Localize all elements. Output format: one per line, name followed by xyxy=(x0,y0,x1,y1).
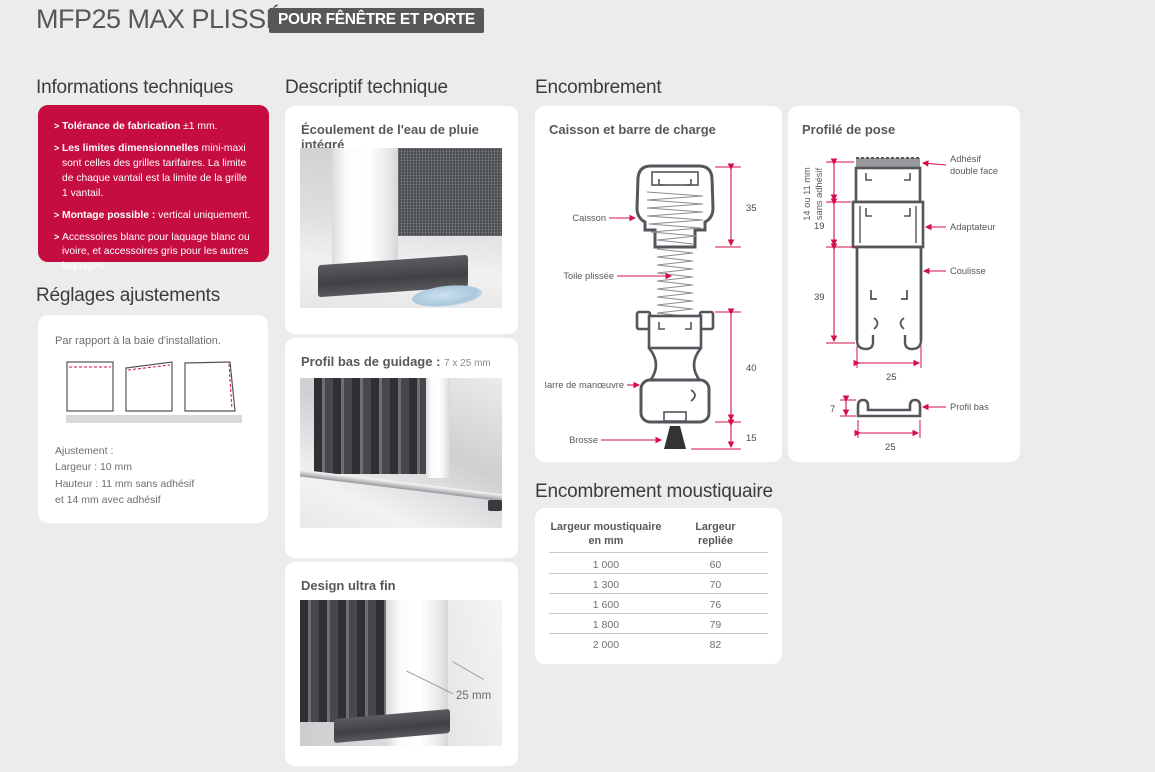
descriptif-card-ecoulement: Écoulement de l'eau de pluie intégré xyxy=(285,106,518,334)
info-item: >Les limites dimensionnelles mini-maxi s… xyxy=(54,142,255,202)
card-title: Caisson et barre de charge xyxy=(549,122,716,137)
info-item: >Montage possible : vertical uniquement. xyxy=(54,209,255,224)
photo-profil-bas xyxy=(300,378,502,528)
table-header-row: Largeur moustiquaire en mm Largeur repli… xyxy=(549,520,768,548)
divider xyxy=(549,593,768,594)
header-line: Largeur moustiquaire xyxy=(549,520,663,534)
caisson-card: Caisson et barre de charge xyxy=(535,106,782,462)
dim-7: 7 xyxy=(830,404,835,415)
dim-25-profil-bas: 25 xyxy=(885,442,896,453)
cell-repliee: 79 xyxy=(663,619,768,631)
cell-repliee: 76 xyxy=(663,599,768,611)
info-item-bold: Tolérance de fabrication xyxy=(62,121,180,132)
label-caisson: Caisson xyxy=(572,213,606,223)
section-heading-descriptif: Descriptif technique xyxy=(285,77,448,99)
descriptif-card-design: Design ultra fin 25 mm xyxy=(285,562,518,766)
info-item-text: vertical uniquement. xyxy=(155,210,250,221)
card-subtitle: 7 x 25 mm xyxy=(444,358,491,369)
table-row: 1 300 70 xyxy=(549,579,768,591)
dim-19: 19 xyxy=(814,221,825,232)
photo-design-ultra-fin: 25 mm xyxy=(300,600,502,746)
section-heading-encombrement-moustiquaire: Encombrement moustiquaire xyxy=(535,481,773,503)
cell-repliee: 60 xyxy=(663,559,768,571)
section-heading-encombrement: Encombrement xyxy=(535,77,661,99)
cell-repliee: 82 xyxy=(663,639,768,651)
mesh-screen xyxy=(398,148,502,236)
adjustment-notes: Ajustement : Largeur : 10 mm Hauteur : 1… xyxy=(55,443,194,508)
cell-largeur: 2 000 xyxy=(549,639,663,651)
dim-40: 40 xyxy=(746,363,757,374)
divider xyxy=(549,613,768,614)
cell-largeur: 1 300 xyxy=(549,579,663,591)
table-row: 2 000 82 xyxy=(549,639,768,651)
info-item-text: ±1 mm. xyxy=(180,121,217,132)
pleated-screen xyxy=(314,378,426,474)
chevron-bullet-icon: > xyxy=(54,231,59,244)
dim-35: 35 xyxy=(746,203,757,214)
adjustment-diagram xyxy=(66,355,242,427)
table-header-col1: Largeur moustiquaire en mm xyxy=(549,520,663,548)
card-title-text: Profil bas de guidage : xyxy=(301,354,440,369)
label-adaptateur: Adaptateur xyxy=(950,222,996,232)
section-heading-informations: Informations techniques xyxy=(36,77,233,99)
adjustment-line: et 14 mm avec adhésif xyxy=(55,492,194,508)
leader-line xyxy=(452,661,484,680)
reglages-card: Par rapport à la baie d'installation. Aj… xyxy=(38,315,268,523)
card-title: Profilé de pose xyxy=(802,122,895,137)
descriptif-card-profil-bas: Profil bas de guidage : 7 x 25 mm xyxy=(285,338,518,558)
section-heading-reglages: Réglages ajustements xyxy=(36,285,220,307)
reglages-caption: Par rapport à la baie d'installation. xyxy=(55,333,221,350)
table-row: 1 800 79 xyxy=(549,619,768,631)
moustiquaire-table-card: Largeur moustiquaire en mm Largeur repli… xyxy=(535,508,782,664)
photo-ecoulement-eau xyxy=(300,148,502,308)
table-row: 1 000 60 xyxy=(549,559,768,571)
white-profile xyxy=(426,378,450,478)
card-title: Design ultra fin xyxy=(301,578,396,593)
info-item-bold: Les limites dimensionnelles xyxy=(62,143,199,154)
divider xyxy=(549,573,768,574)
profile-pose-technical-drawing: 25 7 25 14 ou 11 mm sans adhésif 19 39 A… xyxy=(796,150,1012,456)
cell-largeur: 1 000 xyxy=(549,559,663,571)
info-item-text: Accessoires blanc pour laquage blanc ou … xyxy=(62,232,250,273)
page-title: MFP25 MAX PLISSÉ xyxy=(36,4,283,35)
pleated-screen xyxy=(300,600,386,722)
cell-largeur: 1 600 xyxy=(549,599,663,611)
info-item: >Accessoires blanc pour laquage blanc ou… xyxy=(54,231,255,276)
label-coulisse: Coulisse xyxy=(950,266,986,276)
info-red-box: >Tolérance de fabrication ±1 mm. >Les li… xyxy=(38,105,269,262)
chevron-bullet-icon: > xyxy=(54,120,59,133)
adjustment-line: Hauteur : 11 mm sans adhésif xyxy=(55,476,194,492)
chevron-bullet-icon: > xyxy=(54,209,59,222)
dim-14-11-line2: sans adhésif xyxy=(814,167,824,220)
divider xyxy=(549,552,768,553)
header-line: repliée xyxy=(663,534,768,548)
chevron-bullet-icon: > xyxy=(54,142,59,155)
label-adhesif: Adhésif xyxy=(950,154,981,164)
card-title: Profil bas de guidage : 7 x 25 mm xyxy=(301,354,491,369)
rail-end-cap xyxy=(488,500,502,511)
white-profile xyxy=(332,148,398,276)
label-barre-manoeuvre: Barre de manœuvre xyxy=(545,380,624,390)
table-row: 1 600 76 xyxy=(549,599,768,611)
table-header-col2: Largeur repliée xyxy=(663,520,768,548)
adjustment-line: Ajustement : xyxy=(55,443,194,459)
cell-repliee: 70 xyxy=(663,579,768,591)
dim-25-coulisse: 25 xyxy=(886,372,897,383)
info-item: >Tolérance de fabrication ±1 mm. xyxy=(54,120,255,135)
label-toile-plissee: Toile plissée xyxy=(563,271,614,281)
adjustment-line: Largeur : 10 mm xyxy=(55,459,194,475)
dim-39: 39 xyxy=(814,292,825,303)
profile-pose-card: Profilé de pose 25 7 xyxy=(788,106,1020,462)
divider xyxy=(549,633,768,634)
dimension-annotation: 25 mm xyxy=(456,690,491,702)
dim-14-11-line1: 14 ou 11 mm xyxy=(802,167,812,221)
header-line: en mm xyxy=(549,534,663,548)
caisson-technical-drawing: 35 40 15 Caisson Toile plissée Barre de … xyxy=(545,154,771,456)
dim-15: 15 xyxy=(746,433,757,444)
header-badge: POUR FÊNÊTRE ET PORTE xyxy=(269,8,484,33)
header-line: Largeur xyxy=(663,520,768,534)
cell-largeur: 1 800 xyxy=(549,619,663,631)
label-profil-bas: Profil bas xyxy=(950,402,989,412)
info-item-bold: Montage possible : xyxy=(62,210,155,221)
label-brosse: Brosse xyxy=(569,435,598,445)
label-adhesif-2: double face xyxy=(950,166,998,176)
